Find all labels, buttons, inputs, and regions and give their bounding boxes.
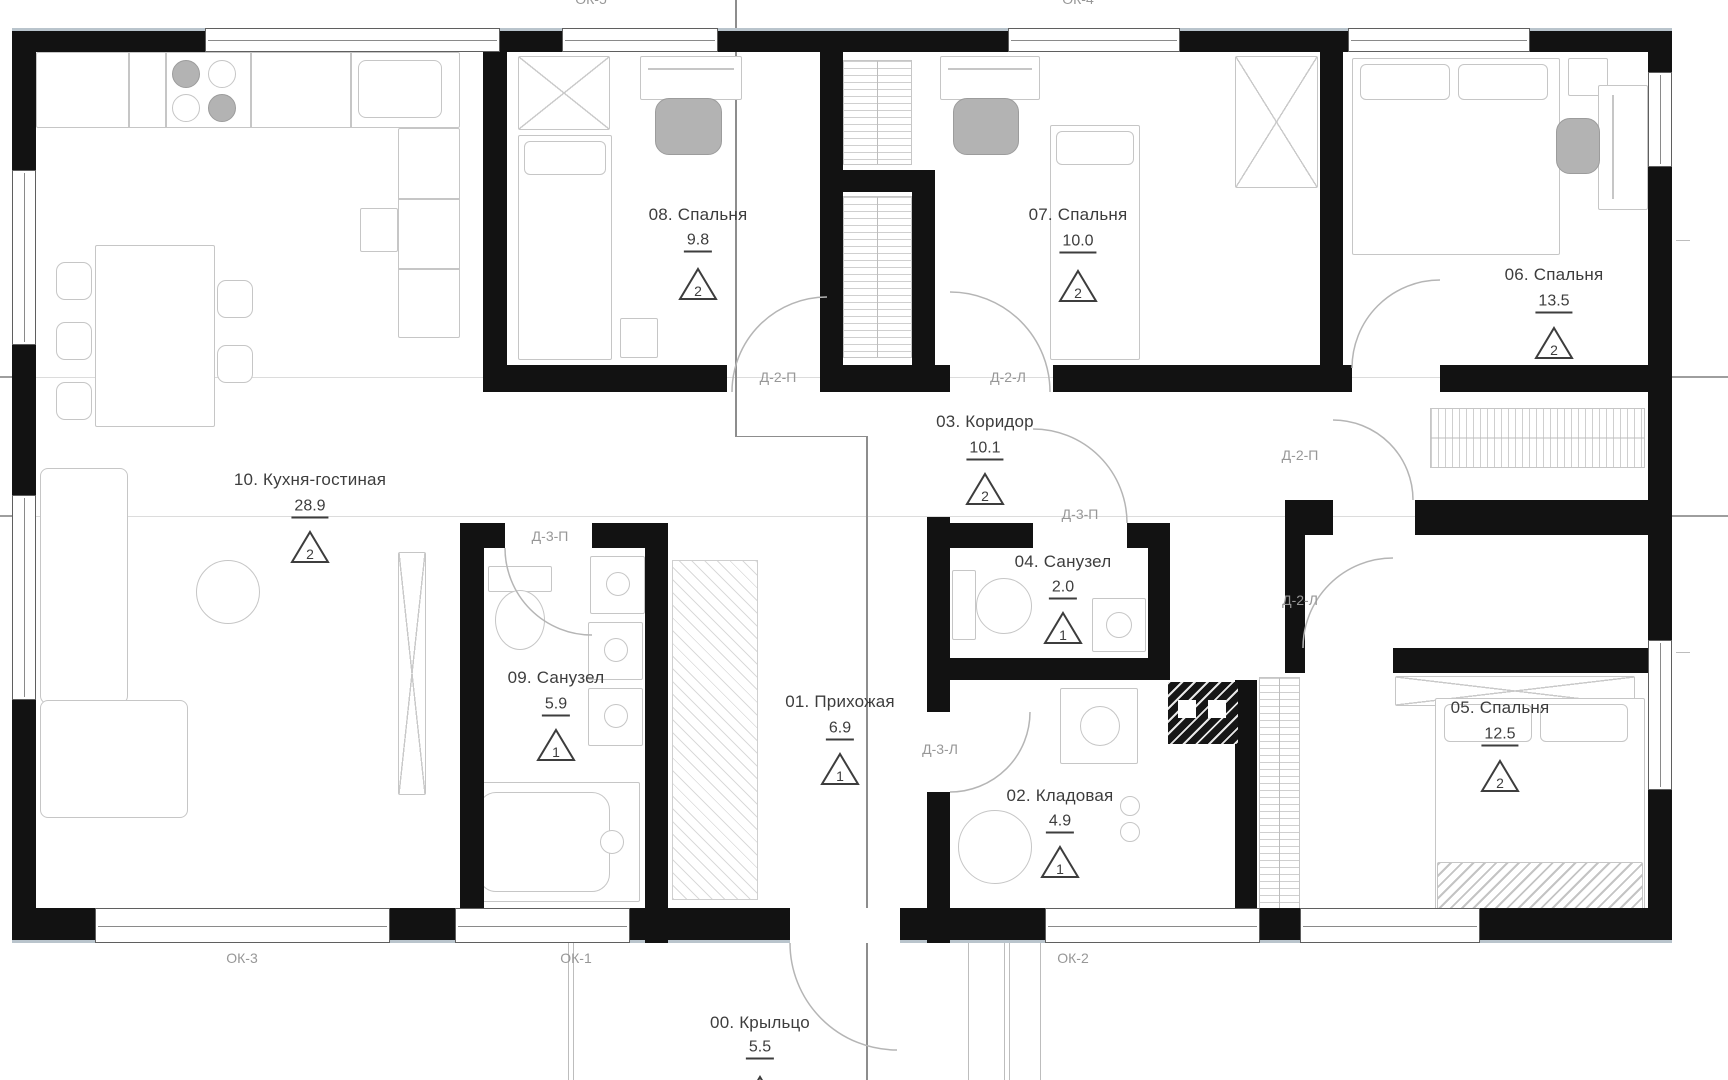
floor-plan: 10. Кухня-гостиная 28.9 2 08. Спальня 9.… [0, 0, 1728, 1080]
wall [1320, 52, 1343, 392]
section-line [866, 436, 868, 1080]
porch-edge [1009, 943, 1010, 1080]
sofa-chaise [40, 700, 188, 818]
room-label-03: 03. Коридор [936, 412, 1034, 432]
stove-burner [208, 94, 236, 122]
door-arc [1333, 420, 1413, 500]
washing-machine-door [606, 572, 630, 596]
occupancy-triangle: 2 [289, 529, 331, 565]
room-label-00: 00. Крыльцо [710, 1013, 810, 1033]
room-area-05: 12.5 [1481, 726, 1518, 747]
door-label: Д-2-Л [1282, 592, 1318, 608]
svg-text:2: 2 [981, 488, 989, 504]
kitchen-counter-divider [165, 52, 167, 128]
pipe [1120, 822, 1140, 842]
room-area-06: 13.5 [1535, 293, 1572, 314]
wall [1343, 365, 1352, 392]
wall [1415, 500, 1672, 535]
room-area-02: 4.9 [1046, 813, 1074, 834]
wall [592, 523, 668, 548]
room-label-04: 04. Санузел [1015, 552, 1112, 572]
room-label-02: 02. Кладовая [1007, 786, 1114, 806]
stove-burner [172, 60, 200, 88]
window-label: ОК-3 [226, 950, 258, 966]
door-label: Д-3-П [1062, 506, 1099, 522]
dining-chair [56, 322, 92, 360]
room-label-09: 09. Санузел [508, 668, 605, 688]
toilet-bowl [976, 578, 1032, 634]
dining-chair [217, 280, 253, 318]
wall [483, 52, 507, 392]
sink-basin [1106, 612, 1132, 638]
wall [827, 365, 912, 392]
wall [935, 365, 950, 392]
window-label: ОК-5 [575, 0, 607, 7]
wall [460, 523, 505, 548]
pillow [1540, 704, 1628, 742]
kitchen-appliance [360, 208, 398, 252]
window [1648, 72, 1672, 167]
ventilation-shaft [1168, 682, 1238, 744]
window [95, 908, 390, 943]
desk-monitor [1612, 95, 1614, 199]
pipe [1120, 796, 1140, 816]
occupancy-triangle: 1 [739, 1074, 781, 1080]
occupancy-triangle: 2 [1057, 268, 1099, 304]
window [455, 908, 630, 943]
porch-edge [1040, 943, 1041, 1080]
kitchen-tall-cabinet [398, 128, 460, 338]
office-chair [953, 98, 1019, 155]
office-chair [1556, 118, 1600, 174]
section-line [735, 436, 868, 437]
clothes-rail [1259, 677, 1300, 930]
svg-text:2: 2 [1496, 775, 1504, 791]
occupancy-triangle: 2 [1479, 758, 1521, 794]
svg-text:2: 2 [694, 283, 702, 299]
toilet-bowl [495, 590, 545, 650]
room-area-04: 2.0 [1049, 579, 1077, 600]
cabinet-shelf [398, 198, 460, 200]
right-margin-tick [1676, 652, 1690, 653]
svg-text:2: 2 [306, 546, 314, 562]
room-label-06: 06. Спальня [1505, 265, 1604, 285]
room-area-09: 5.9 [542, 696, 570, 717]
window [1300, 908, 1480, 943]
desk-monitor [948, 68, 1032, 70]
water-heater [958, 810, 1032, 884]
nightstand [620, 318, 658, 358]
corridor-wardrobe [1430, 408, 1645, 468]
wall [912, 170, 935, 392]
coffee-table [196, 560, 260, 624]
desk [1598, 85, 1648, 210]
porch-edge [968, 943, 969, 1080]
occupancy-triangle: 2 [1533, 325, 1575, 361]
room-label-10: 10. Кухня-гостиная [234, 470, 386, 490]
desk [940, 56, 1040, 100]
wall [820, 52, 843, 392]
wall [1285, 648, 1303, 673]
window [562, 28, 718, 52]
wall [1393, 648, 1672, 673]
occupancy-triangle: 2 [677, 266, 719, 302]
svg-text:1: 1 [552, 744, 560, 760]
svg-text:1: 1 [1059, 627, 1067, 643]
wall [460, 523, 484, 943]
door-label: Д-3-Л [922, 741, 958, 757]
window [12, 495, 36, 700]
pillow [1360, 64, 1450, 100]
room-label-08: 08. Спальня [649, 205, 748, 225]
window [12, 170, 36, 345]
office-chair [655, 98, 722, 155]
svg-text:1: 1 [836, 768, 844, 784]
occupancy-triangle: 1 [819, 751, 861, 787]
dining-table [95, 245, 215, 427]
room-area-00: 5.5 [746, 1039, 774, 1060]
room-area-03: 10.1 [966, 440, 1003, 461]
door-label: Д-2-Л [990, 369, 1026, 385]
dining-chair [56, 382, 92, 420]
hall-closet [672, 560, 758, 900]
window [1648, 640, 1672, 790]
wall [1440, 365, 1672, 392]
pillow [524, 141, 606, 175]
tv-cabinet [398, 552, 426, 795]
svg-text:1: 1 [1056, 861, 1064, 877]
door-label: Д-3-П [532, 528, 569, 544]
window [205, 28, 500, 52]
svg-text:2: 2 [1550, 342, 1558, 358]
room-label-07: 07. Спальня [1029, 205, 1128, 225]
wall [820, 170, 935, 192]
wall [1285, 500, 1333, 535]
room-area-10: 28.9 [291, 498, 328, 519]
wall [927, 523, 1033, 548]
wall [483, 365, 727, 392]
room-area-08: 9.8 [684, 232, 712, 253]
sofa [40, 468, 128, 704]
sink-basin [604, 704, 628, 728]
wardrobe [1235, 56, 1318, 188]
room-area-07: 10.0 [1059, 233, 1096, 254]
door-label: Д-2-П [1282, 447, 1319, 463]
porch-edge [1004, 943, 1005, 1080]
room-area-01: 6.9 [826, 720, 854, 741]
wall [12, 28, 36, 943]
kitchen-counter-divider [250, 52, 252, 128]
wall [1235, 680, 1257, 943]
entrance-opening [790, 908, 900, 943]
clothes-rail [843, 60, 912, 165]
axis-tick [1672, 515, 1728, 517]
occupancy-triangle: 1 [1039, 844, 1081, 880]
occupancy-triangle: 1 [1042, 610, 1084, 646]
window-label: ОК-4 [1062, 0, 1094, 7]
wardrobe [518, 56, 610, 130]
clothes-rail [843, 196, 912, 358]
occupancy-triangle: 2 [964, 471, 1006, 507]
cabinet-shelf [398, 268, 460, 270]
door-label: Д-2-П [760, 369, 797, 385]
kitchen-counter-divider [350, 52, 352, 128]
axis-tick [1672, 376, 1728, 378]
window [1348, 28, 1530, 52]
bathtub-inner [478, 792, 610, 892]
washing-machine-door [1080, 706, 1120, 746]
stove-burner [208, 60, 236, 88]
room-label-01: 01. Прихожая [785, 692, 895, 712]
kitchen-counter-divider [128, 52, 130, 128]
wall [927, 658, 1170, 680]
window-label: ОК-1 [560, 950, 592, 966]
dining-chair [56, 262, 92, 300]
occupancy-triangle: 1 [535, 727, 577, 763]
wall [645, 523, 668, 943]
desk-monitor [648, 68, 734, 70]
dining-chair [217, 345, 253, 383]
door-arc [790, 943, 897, 1050]
kitchen-sink [358, 60, 442, 118]
door-arc [950, 712, 1030, 792]
toilet-tank [488, 566, 552, 592]
sink-basin [604, 638, 628, 662]
desk [640, 56, 742, 100]
bathtub-drain [600, 830, 624, 854]
pillow [1056, 131, 1134, 165]
right-margin-tick [1676, 240, 1690, 241]
stove-burner [172, 94, 200, 122]
wall [1053, 365, 1320, 392]
toilet-tank [952, 570, 976, 640]
window-label: ОК-2 [1057, 950, 1089, 966]
wall [1127, 523, 1170, 548]
window [1008, 28, 1180, 52]
room-label-05: 05. Спальня [1451, 698, 1550, 718]
door-arc [1352, 280, 1440, 368]
window [1045, 908, 1260, 943]
pillow [1458, 64, 1548, 100]
svg-text:2: 2 [1074, 285, 1082, 301]
